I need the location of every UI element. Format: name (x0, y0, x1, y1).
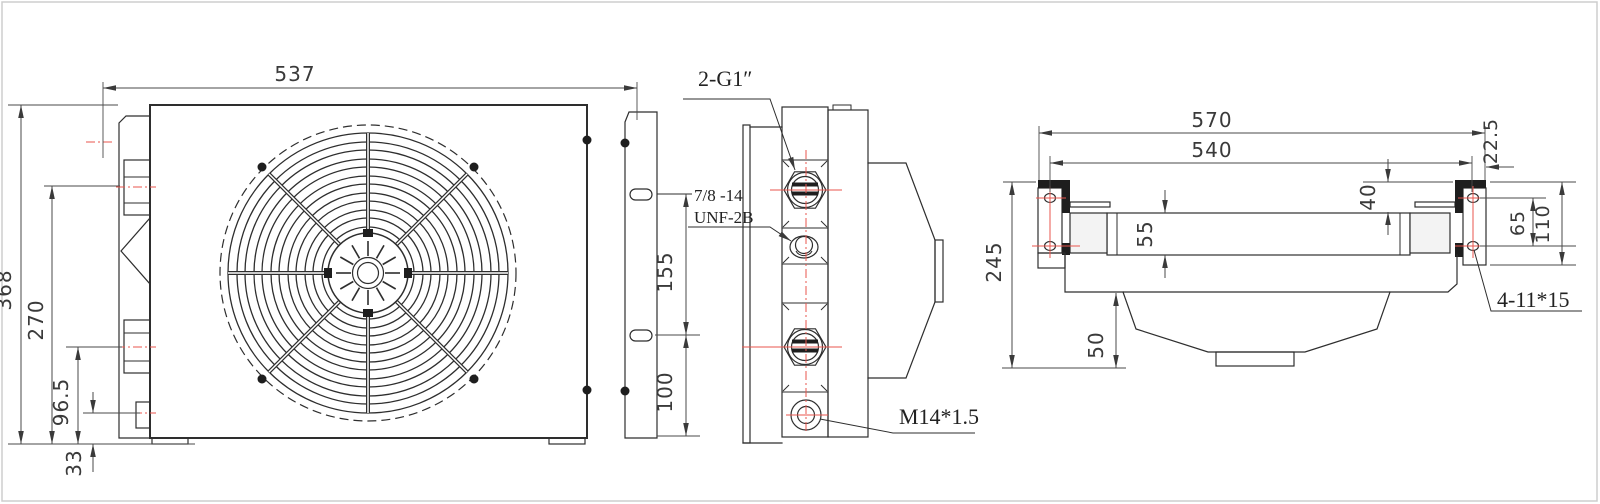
label-text-m14: M14*1.5 (899, 404, 979, 429)
label-text-2-g1: 2-G1″ (698, 66, 752, 91)
dim-bracket-lower: 96.5 (49, 347, 122, 444)
label-mount-slots: 4-11*15 (1474, 250, 1582, 312)
dim-text-65: 65 (1507, 210, 1529, 236)
fan-guard (220, 125, 516, 421)
label-text-7-8-14: 7/8 -14 (694, 186, 743, 205)
dim-hole-span: 540 (1050, 138, 1472, 192)
dim-text-100: 100 (653, 371, 677, 412)
label-text-4-11-15: 4-11*15 (1497, 287, 1570, 312)
dim-text-22-5: 22.5 (1480, 118, 1502, 164)
dim-text-33: 33 (62, 449, 86, 476)
front-view: 537 368 270 96.5 (0, 62, 657, 477)
dim-hole-offset: 22.5 (1480, 118, 1514, 170)
dim-text-110: 110 (1532, 204, 1554, 243)
mount-slot-lower (630, 330, 652, 341)
right-mount-strip (621, 112, 658, 438)
dim-foot-offset: 33 (62, 392, 140, 477)
label-aux-port: 7/8 -14 UNF-2B (657, 186, 791, 241)
back-plate (828, 110, 868, 437)
label-text-unf-2b: UNF-2B (694, 208, 754, 227)
dim-bracket-height: 110 (1490, 182, 1576, 265)
label-drain-port: M14*1.5 (820, 404, 979, 433)
dim-text-270: 270 (24, 299, 48, 340)
dim-text-55: 55 (1133, 220, 1157, 247)
guard-screw (470, 163, 479, 172)
motor-tab (1216, 352, 1294, 366)
mount-slot-upper (630, 189, 652, 200)
dim-front-height: 368 (0, 105, 195, 444)
plate-left (1070, 202, 1110, 207)
dim-text-245: 245 (982, 241, 1006, 282)
left-tank-strip (86, 116, 156, 438)
dim-text-537: 537 (274, 62, 315, 86)
dim-text-40: 40 (1356, 183, 1380, 210)
weld-dot (583, 386, 592, 395)
dim-text-570: 570 (1191, 108, 1232, 132)
guard-screw (470, 375, 479, 384)
port-manifold (782, 107, 828, 437)
top-view: 570 540 22.5 245 (982, 108, 1582, 368)
dim-overall-width: 570 (1039, 108, 1485, 180)
guard-screw (258, 375, 267, 384)
plate-right (1415, 202, 1455, 207)
oil-cooler-three-view-drawing: 537 368 270 96.5 (0, 0, 1600, 504)
port-unf (790, 236, 818, 258)
dim-text-540: 540 (1191, 138, 1232, 162)
drawing-canvas: 537 368 270 96.5 (0, 0, 1600, 504)
dim-shroud-depth: 50 (1084, 293, 1119, 368)
weld-dot (583, 136, 592, 145)
weld-dot (621, 387, 630, 396)
pad-left (1070, 213, 1107, 253)
bottom-plate (1065, 255, 1457, 292)
motor-boss (935, 240, 943, 302)
dim-text-155: 155 (653, 251, 677, 292)
dim-text-96-5: 96.5 (49, 378, 73, 427)
side-view: 2-G1″ 7/8 -14 UNF-2B M14*1.5 155 (653, 66, 979, 443)
dim-text-50: 50 (1084, 331, 1108, 358)
dim-port-bottom: 100 (653, 335, 700, 436)
dim-text-368: 368 (0, 269, 16, 310)
shroud-top-view (1123, 292, 1390, 352)
pad-right (1410, 213, 1450, 253)
core-slab (743, 125, 750, 443)
back-plate-step (833, 105, 851, 110)
bracket-right (1455, 180, 1492, 265)
shroud-profile (868, 163, 935, 378)
label-main-ports: 2-G1″ (683, 66, 795, 170)
weld-dot (621, 139, 630, 148)
dim-core-thickness: 55 (1133, 190, 1168, 278)
dim-port-spacing: 155 (653, 194, 700, 335)
guard-screw (258, 163, 267, 172)
